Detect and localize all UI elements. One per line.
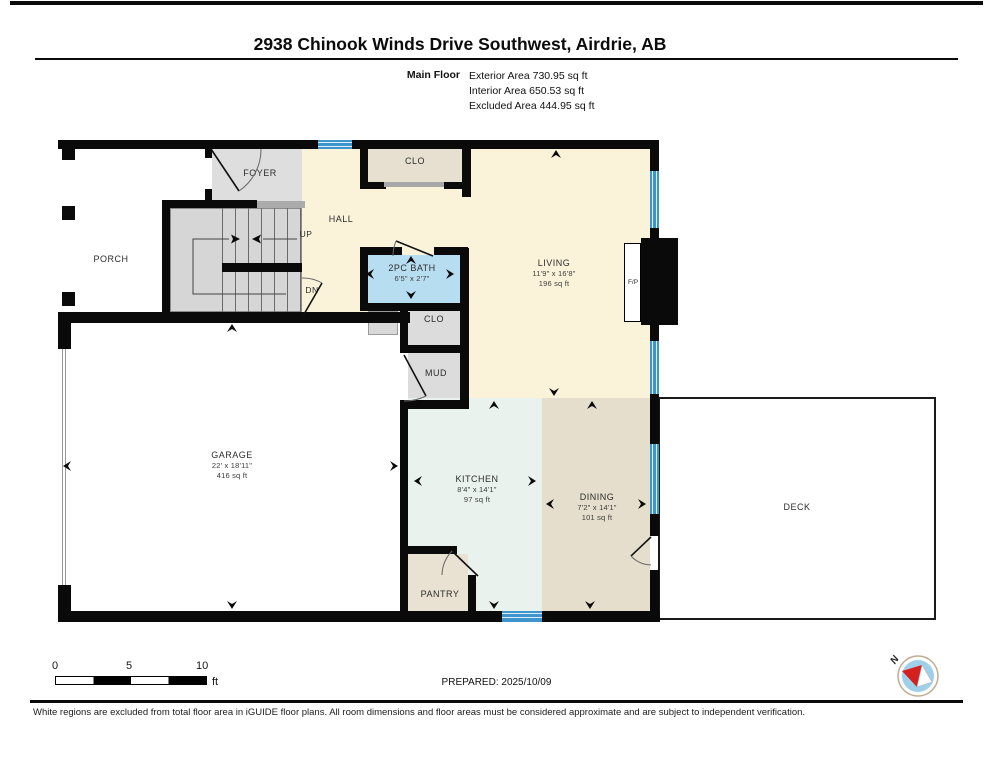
foyer-label: FOYER (243, 168, 277, 179)
wall-segment (58, 140, 318, 149)
wall-segment (400, 400, 408, 622)
wall-segment (400, 345, 469, 353)
wall-segment (205, 189, 212, 207)
garage-label: GARAGE 22' x 18'11" 416 sq ft (211, 450, 253, 481)
wall-segment (360, 303, 469, 311)
garage-door-line (62, 344, 66, 590)
wall-segment (650, 394, 659, 444)
scale-tick-5: 5 (126, 660, 132, 672)
footer-divider (30, 700, 963, 703)
wall-segment (58, 312, 410, 323)
window (502, 611, 542, 622)
wall-segment (360, 140, 368, 189)
wall-segment (650, 514, 659, 536)
wall-segment (352, 140, 658, 149)
wall-segment (650, 570, 659, 611)
stair-steps-lower (222, 272, 302, 312)
compass-north-label: N (888, 653, 902, 666)
room-pantry (408, 554, 468, 611)
dimension-arrow (390, 461, 398, 471)
wall-segment (58, 585, 71, 611)
wall-segment (460, 248, 469, 311)
stairs-down-label: DN (305, 285, 318, 296)
wall-segment (641, 238, 678, 325)
window (318, 140, 352, 149)
wall-segment (62, 292, 75, 306)
deck-label: DECK (783, 502, 810, 513)
wall-segment (460, 311, 469, 400)
wall-segment (462, 140, 471, 197)
stair-steps-upper (222, 208, 302, 263)
wall-segment (468, 575, 476, 611)
window (650, 171, 659, 228)
floor-plan: PORCH FOYER HALL CLO UP DN 2PC BATH 6'5"… (0, 0, 993, 768)
stair-landing-edge (257, 201, 305, 208)
stair-divider-wall (222, 263, 302, 272)
wall-segment (650, 140, 659, 171)
scale-unit-label: ft (212, 676, 218, 688)
compass: N (886, 648, 948, 704)
window (650, 444, 659, 514)
scale-tick-10: 10 (196, 660, 208, 672)
wall-segment (360, 247, 368, 311)
closet-rod (384, 182, 444, 187)
wall-segment (62, 206, 75, 220)
scale-tick-0: 0 (52, 660, 58, 672)
hall-label: HALL (329, 214, 354, 225)
wall-segment (400, 400, 469, 409)
wall-segment (205, 148, 212, 158)
floor-plan-page: 2938 Chinook Winds Drive Southwest, Aird… (0, 0, 993, 768)
fireplace-label: F/P (628, 277, 638, 288)
dining-label: DINING 7'2" x 14'1" 101 sq ft (577, 492, 616, 523)
scale-bar (55, 676, 207, 685)
window (650, 341, 659, 394)
mud-label: MUD (425, 368, 447, 379)
wall-segment (162, 200, 170, 312)
bath-label: 2PC BATH 6'5" x 2'7" (388, 263, 435, 284)
wall-segment (400, 546, 457, 554)
closet-lower-label: CLO (424, 314, 444, 325)
pantry-label: PANTRY (421, 589, 460, 600)
porch-label: PORCH (93, 254, 128, 265)
wall-segment (400, 312, 408, 348)
stairs-up-label: UP (300, 229, 313, 240)
kitchen-label: KITCHEN 8'4" x 14'1" 97 sq ft (455, 474, 498, 505)
disclaimer-text: White regions are excluded from total fl… (33, 707, 963, 718)
dimension-arrow (227, 324, 237, 332)
wall-segment (62, 146, 75, 160)
dimension-arrow (227, 601, 237, 609)
wall-segment (58, 611, 410, 622)
closet-top-label: CLO (405, 156, 425, 167)
wall-segment (58, 323, 71, 349)
living-label: LIVING 11'9" x 16'8" 196 sq ft (532, 258, 575, 289)
